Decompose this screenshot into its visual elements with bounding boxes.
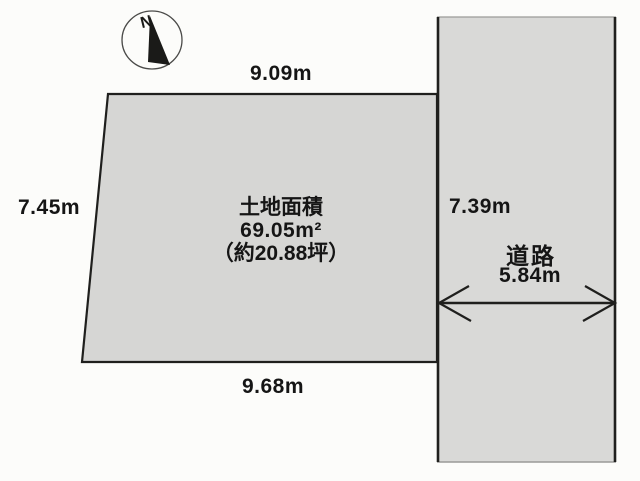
land-area-value: 69.05m² [213,219,350,242]
land-area-block: 土地面積 69.05m² （約20.88坪） [213,196,350,265]
road-width-label: 5.84m [499,264,561,288]
dimension-bottom: 9.68m [242,375,304,399]
dimension-right: 7.39m [449,195,511,219]
land-area-tsubo: （約20.88坪） [213,242,350,265]
north-label: N [139,13,154,32]
dimension-top: 9.09m [250,62,312,86]
land-area-title: 土地面積 [213,196,350,219]
land-plot-diagram: N 9.09m 7.45m 7.39m 9.68m 土地面積 69.05m² （… [0,0,640,481]
dimension-left: 7.45m [18,196,80,220]
north-compass-icon: N [122,11,182,69]
